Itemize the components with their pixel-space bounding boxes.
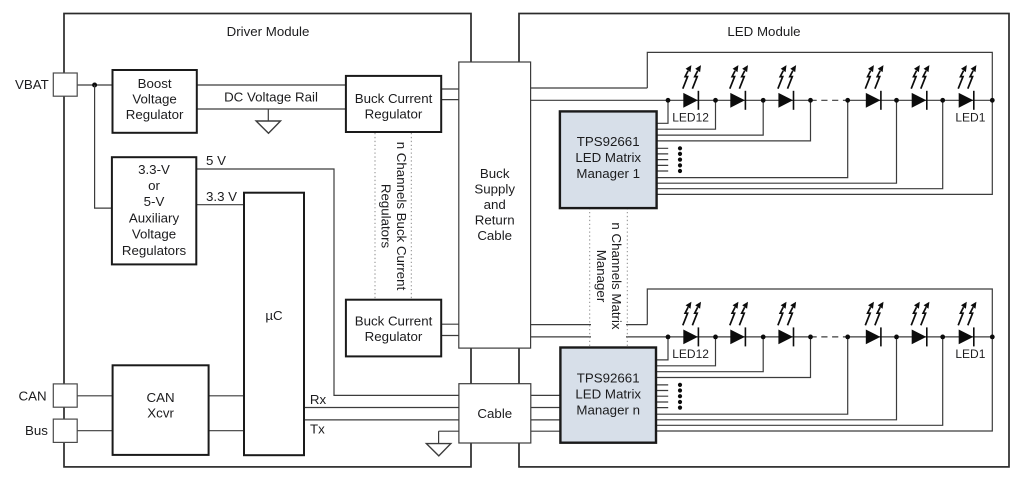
svg-text:LED Module: LED Module: [727, 24, 800, 39]
svg-text:Bus: Bus: [25, 423, 48, 438]
svg-text:Buck Current: Buck Current: [355, 314, 433, 329]
svg-text:Voltage: Voltage: [132, 92, 176, 107]
svg-text:or: or: [148, 178, 160, 193]
svg-text:and: and: [484, 197, 506, 212]
svg-text:Regulator: Regulator: [365, 107, 423, 122]
svg-text:Buck: Buck: [480, 166, 510, 181]
svg-text:Manager: Manager: [594, 250, 609, 303]
svg-text:3.3 V: 3.3 V: [206, 189, 237, 204]
svg-text:n Channels Buck Current: n Channels Buck Current: [394, 142, 409, 291]
svg-text:Tx: Tx: [310, 422, 325, 437]
svg-text:3.3-V: 3.3-V: [138, 162, 170, 177]
svg-text:Cable: Cable: [477, 228, 512, 243]
svg-text:5-V: 5-V: [144, 194, 165, 209]
svg-text:Manager 1: Manager 1: [576, 166, 640, 181]
svg-text:LED1: LED1: [955, 110, 985, 124]
svg-text:Boost: Boost: [138, 76, 172, 91]
svg-text:TPS92661: TPS92661: [577, 371, 640, 386]
svg-text:Manager n: Manager n: [576, 403, 640, 418]
svg-text:LED Matrix: LED Matrix: [575, 150, 641, 165]
svg-text:Return: Return: [475, 213, 515, 228]
svg-text:LED12: LED12: [672, 347, 709, 361]
svg-text:Xcvr: Xcvr: [147, 406, 174, 421]
svg-text:LED12: LED12: [672, 110, 709, 124]
svg-text:µC: µC: [265, 308, 283, 323]
svg-text:CAN: CAN: [147, 390, 175, 405]
svg-text:Rx: Rx: [310, 392, 327, 407]
svg-text:DC Voltage Rail: DC Voltage Rail: [224, 90, 318, 105]
svg-text:TPS92661: TPS92661: [577, 134, 640, 149]
svg-text:Regulators: Regulators: [122, 243, 187, 258]
svg-text:VBAT: VBAT: [15, 77, 49, 92]
svg-text:LED Matrix: LED Matrix: [575, 387, 641, 402]
svg-text:Supply: Supply: [474, 182, 515, 197]
svg-text:5 V: 5 V: [206, 153, 226, 168]
svg-text:Driver Module: Driver Module: [227, 24, 310, 39]
svg-text:Cable: Cable: [477, 406, 512, 421]
svg-text:CAN: CAN: [19, 389, 47, 404]
svg-text:Regulator: Regulator: [365, 329, 423, 344]
svg-text:Auxiliary: Auxiliary: [129, 210, 180, 225]
svg-text:n Channels Matrix: n Channels Matrix: [609, 222, 624, 330]
svg-text:LED1: LED1: [955, 347, 985, 361]
svg-text:Regulator: Regulator: [126, 107, 184, 122]
svg-text:Regulators: Regulators: [378, 184, 393, 249]
svg-text:Buck Current: Buck Current: [355, 91, 433, 106]
svg-text:Voltage: Voltage: [132, 227, 176, 242]
